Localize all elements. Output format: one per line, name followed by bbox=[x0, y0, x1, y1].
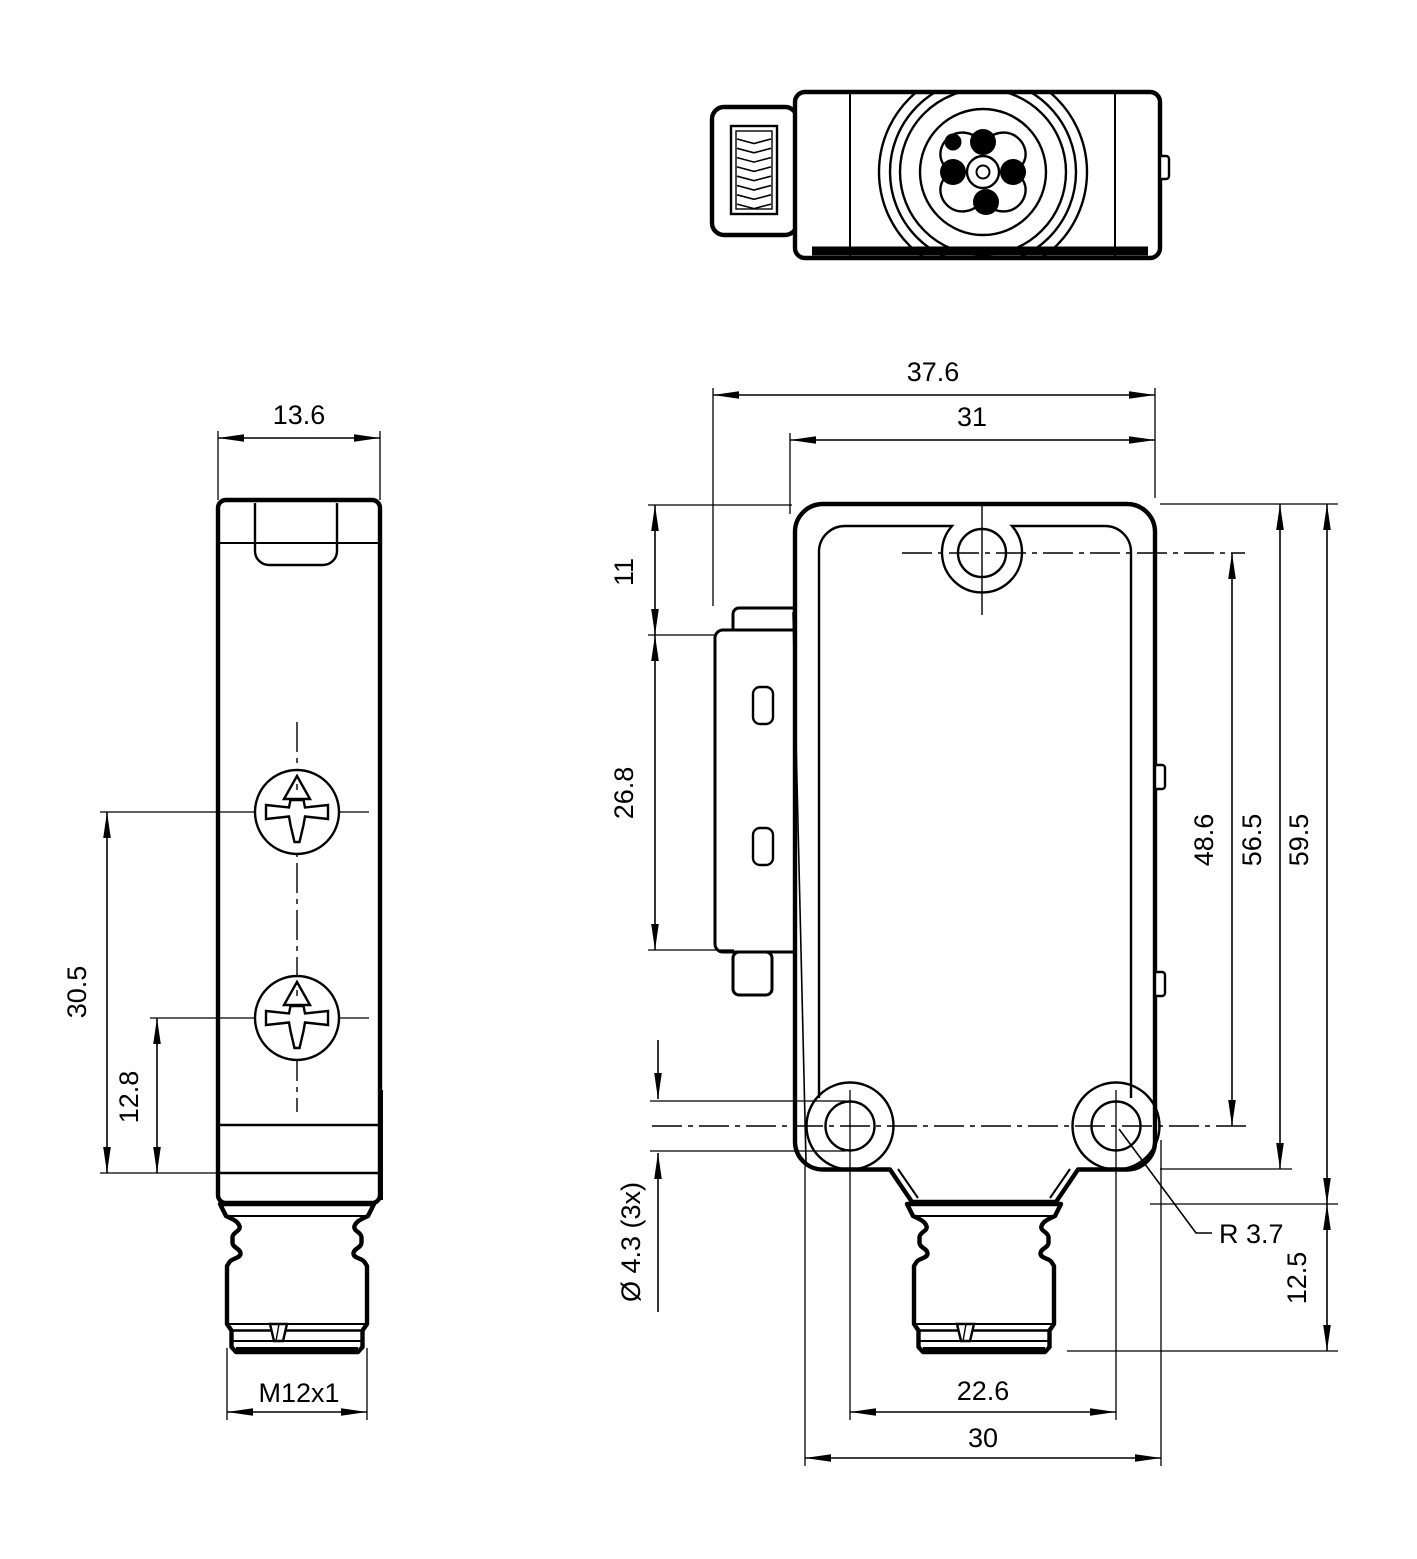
top-view bbox=[712, 68, 1169, 276]
dim-front-overall-length-label: 59.5 bbox=[1284, 814, 1314, 867]
mounting-bracket bbox=[715, 630, 800, 952]
pin bbox=[940, 159, 966, 185]
dimensional-drawing: 13.6 30.5 12.8 M12x1 37.6 31 11 26.8 Ø 4… bbox=[0, 0, 1417, 1559]
side-tab bbox=[1160, 156, 1169, 179]
m12-connector bbox=[907, 1204, 1061, 1352]
dim-front-bracket-offset-label: 11 bbox=[609, 558, 639, 586]
side-tab bbox=[1155, 972, 1165, 996]
dim-front-bottom-hole-spacing-label: 22.6 bbox=[957, 1376, 1010, 1406]
dim-front-corner-radius-label: R 3.7 bbox=[1219, 1219, 1284, 1249]
dim-side-width-label: 13.6 bbox=[273, 400, 326, 430]
side-tab bbox=[1155, 765, 1165, 789]
drawing-canvas: 13.6 30.5 12.8 M12x1 37.6 31 11 26.8 Ø 4… bbox=[0, 0, 1417, 1559]
bracket-foot bbox=[733, 952, 772, 995]
side-view bbox=[100, 500, 382, 1352]
adjustment-screw bbox=[255, 976, 339, 1060]
dim-front-bottom-width-label: 30 bbox=[968, 1423, 998, 1453]
dim-front-hole-span-label: 48.6 bbox=[1189, 814, 1219, 867]
dim-front-bracket-height-label: 26.8 bbox=[609, 767, 639, 820]
dim-front-housing-length-label: 56.5 bbox=[1237, 814, 1267, 867]
dim-front-housing-width-label: 31 bbox=[957, 402, 987, 432]
dim-front-overall-width-label: 37.6 bbox=[907, 357, 960, 387]
dim-side-thread-label: M12x1 bbox=[258, 1378, 339, 1408]
front-view bbox=[652, 504, 1248, 1420]
pin bbox=[1000, 159, 1026, 185]
housing-front-outline bbox=[795, 504, 1155, 1202]
dim-front-connector-length-label: 12.5 bbox=[1282, 1252, 1312, 1305]
adjustment-screw bbox=[255, 770, 339, 854]
pin bbox=[970, 129, 996, 155]
m12-connector bbox=[220, 1204, 374, 1352]
dim-side-hole-spacing-label: 30.5 bbox=[62, 966, 92, 1019]
pin-small bbox=[945, 134, 962, 151]
dim-front-hole-diameter-label: Ø 4.3 (3x) bbox=[616, 1182, 646, 1302]
pin bbox=[973, 189, 999, 215]
dim-side-hole-offset-label: 12.8 bbox=[114, 1071, 144, 1124]
